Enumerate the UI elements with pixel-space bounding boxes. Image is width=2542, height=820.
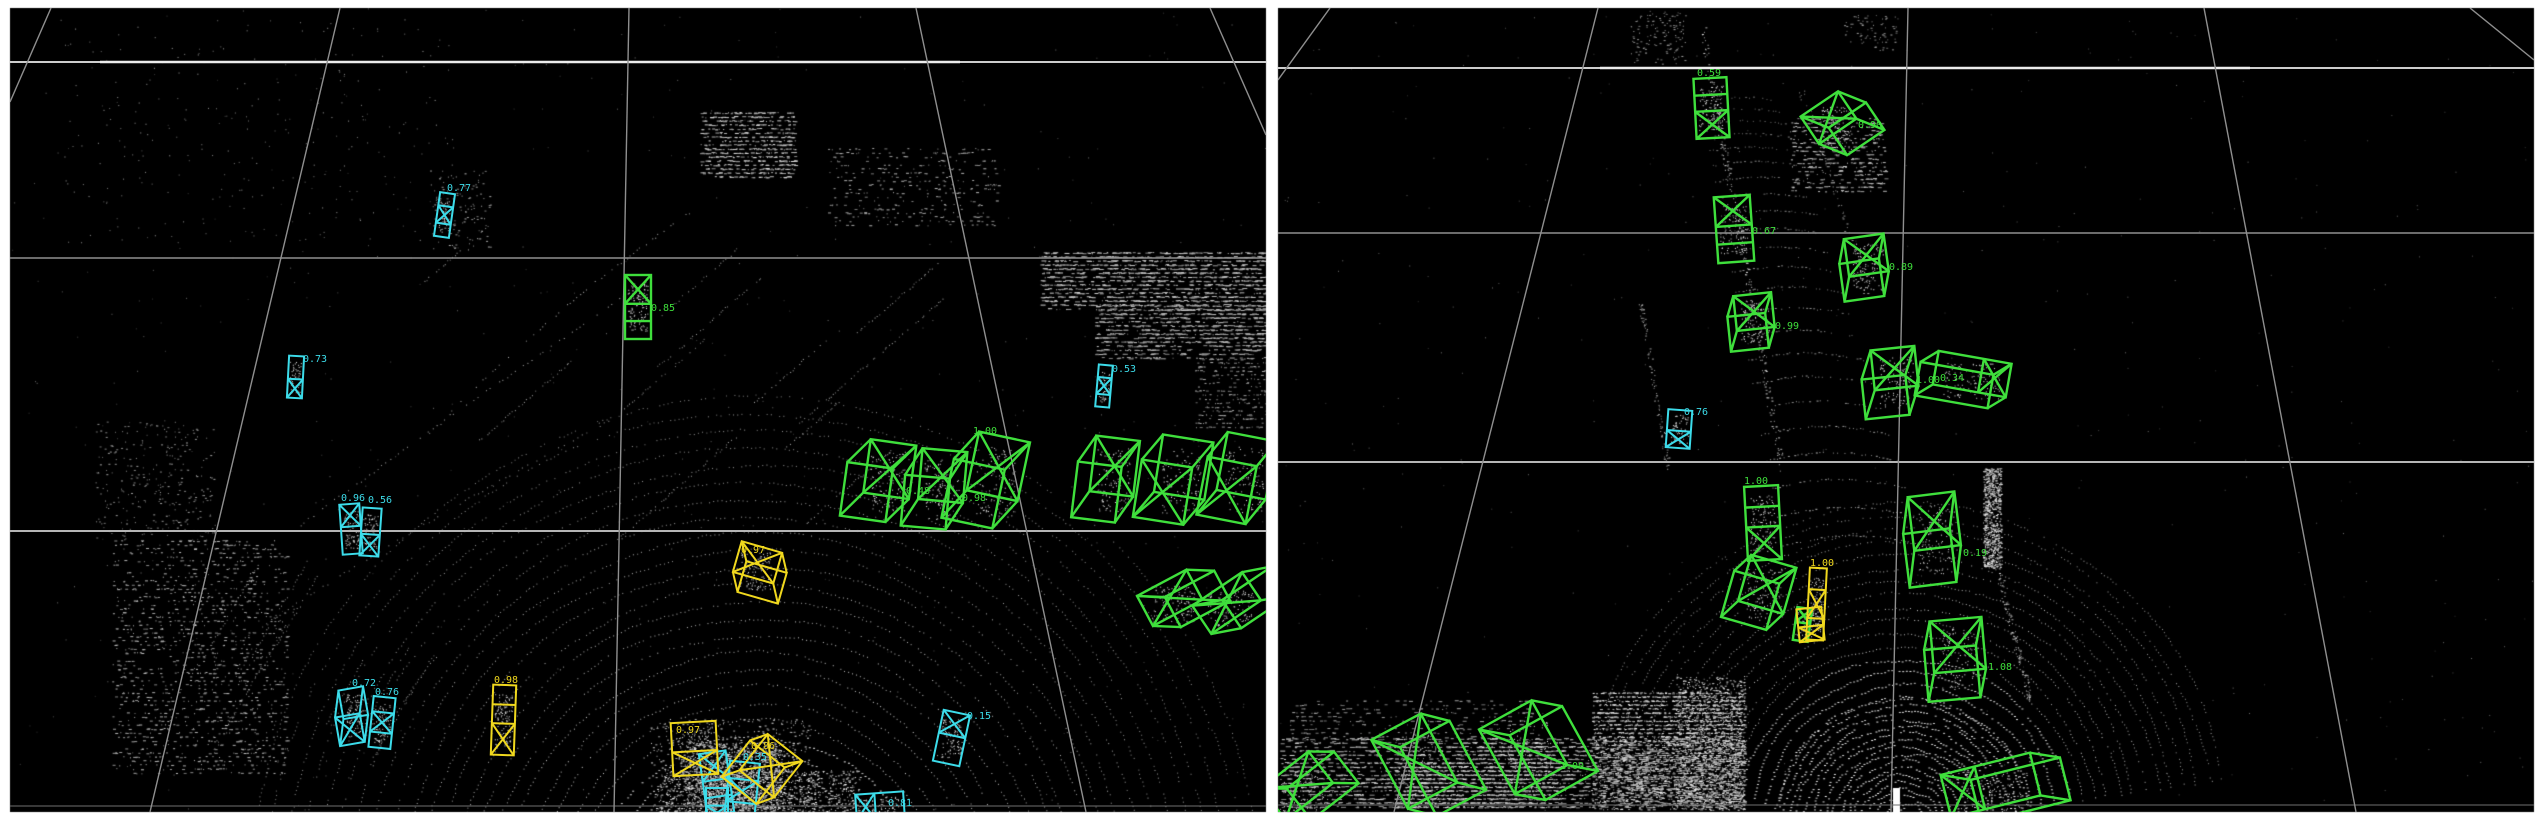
left-view-viewport[interactable] xyxy=(10,8,1266,812)
right-view-viewport[interactable] xyxy=(1278,8,2534,812)
lidar-viewer-page: 0.770.730.960.560.720.760.150.530.810.35… xyxy=(0,0,2542,820)
